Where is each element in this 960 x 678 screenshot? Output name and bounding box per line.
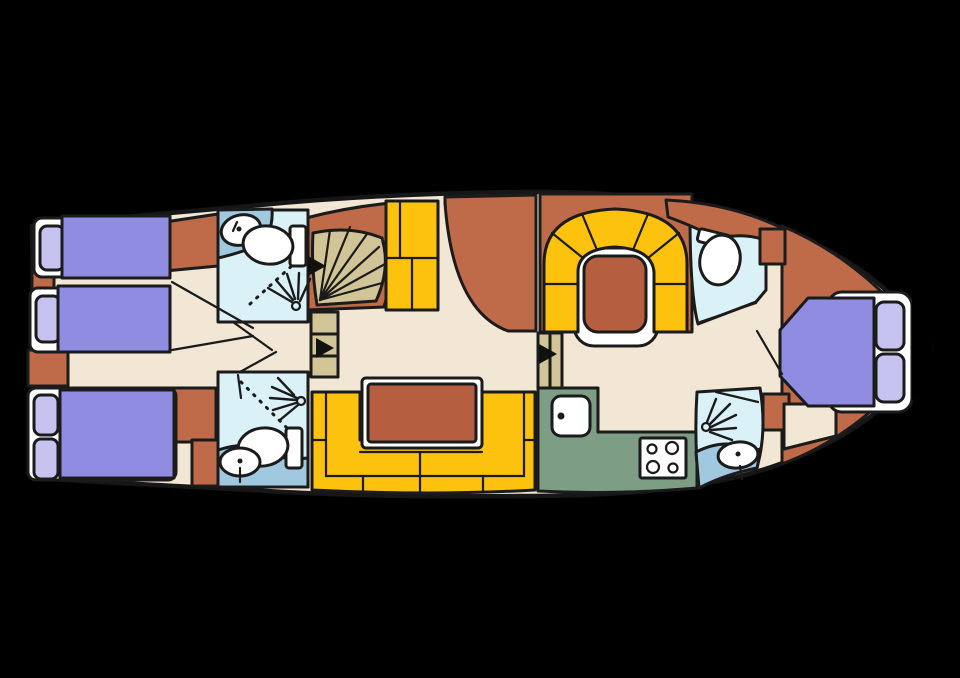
bed-blanket bbox=[780, 298, 874, 406]
stern-beds bbox=[28, 216, 176, 480]
saloon bbox=[312, 378, 535, 493]
boat-floor-plan bbox=[0, 0, 960, 678]
bed-pillow bbox=[36, 296, 60, 342]
bed-pillow bbox=[34, 395, 58, 435]
bed-pillow bbox=[34, 439, 58, 479]
bow-tip-shadow bbox=[912, 292, 933, 402]
bed-blanket bbox=[62, 216, 170, 278]
bow-bed bbox=[780, 292, 912, 412]
bed-blanket bbox=[60, 390, 174, 478]
saloon-table bbox=[368, 384, 476, 442]
sink-icon bbox=[552, 396, 590, 436]
galley-cabinet bbox=[386, 201, 438, 310]
screenshot-canvas bbox=[0, 0, 960, 678]
bed-single bbox=[34, 216, 170, 278]
bed-pillow bbox=[40, 226, 64, 270]
bathroom-port-aft bbox=[218, 209, 310, 322]
bathroom-starboard-aft bbox=[218, 372, 308, 487]
stove-icon bbox=[640, 438, 686, 478]
dinette-table bbox=[584, 256, 646, 332]
bed-pillow bbox=[876, 302, 904, 350]
dinette bbox=[544, 209, 687, 346]
bed-blanket bbox=[58, 286, 170, 352]
bed-single bbox=[30, 286, 170, 352]
trim-block bbox=[165, 214, 218, 271]
trim-block bbox=[28, 350, 68, 386]
bed-double bbox=[28, 388, 176, 480]
bed-pillow bbox=[876, 354, 904, 402]
trim-block bbox=[760, 229, 785, 264]
bow-cabin bbox=[757, 226, 933, 464]
